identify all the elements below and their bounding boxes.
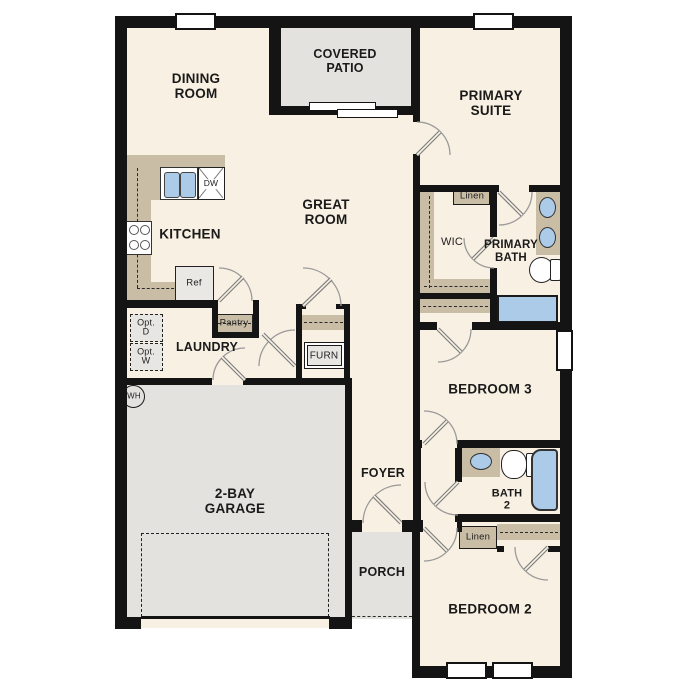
bath2-label: BATH 2	[492, 488, 523, 513]
bedroom2-label: BEDROOM 2	[448, 601, 532, 616]
door-furnace-closet	[303, 268, 341, 306]
furnace-label: FURN	[310, 350, 339, 361]
door-primary-suite	[417, 122, 450, 155]
door-laundry	[259, 330, 295, 366]
porch-label: PORCH	[359, 565, 405, 579]
linen-primary-label: Linen	[460, 192, 484, 203]
door-bedroom3-entry	[424, 411, 457, 444]
dining-room-label: DINING ROOM	[172, 71, 220, 101]
wic-label: WIC	[441, 236, 463, 248]
door-primary-bath	[499, 192, 532, 225]
door-bedroom2-closet	[515, 547, 548, 580]
bedroom3-label: BEDROOM 3	[448, 381, 532, 396]
door-front-entry	[363, 485, 401, 523]
refrigerator-label: Ref	[186, 279, 201, 290]
linen-bath2-label: Linen	[466, 533, 490, 544]
opt-washer-label: Opt. W	[137, 348, 155, 367]
door-pantry	[219, 268, 252, 301]
garage-label: 2-BAY GARAGE	[205, 486, 265, 516]
primary-bath-label: PRIMARY BATH	[484, 239, 538, 265]
floor-plan: DINING ROOM COVERED PATIO PRIMARY SUITE …	[0, 0, 687, 687]
door-bath2	[425, 482, 458, 515]
door-bedroom2-entry	[424, 528, 457, 561]
primary-suite-label: PRIMARY SUITE	[459, 88, 522, 118]
great-room-label: GREAT ROOM	[302, 197, 349, 227]
water-heater-label: WH	[127, 393, 141, 402]
pantry-label: Pantry	[220, 319, 249, 330]
foyer-label: FOYER	[361, 466, 405, 480]
doors-layer	[0, 0, 687, 687]
door-bedroom3-closet	[438, 329, 471, 362]
laundry-label: LAUNDRY	[176, 340, 238, 354]
dishwasher-label: DW	[203, 179, 220, 189]
kitchen-label: KITCHEN	[159, 226, 220, 241]
covered-patio-label: COVERED PATIO	[313, 47, 376, 75]
opt-dryer-label: Opt. D	[137, 319, 155, 338]
